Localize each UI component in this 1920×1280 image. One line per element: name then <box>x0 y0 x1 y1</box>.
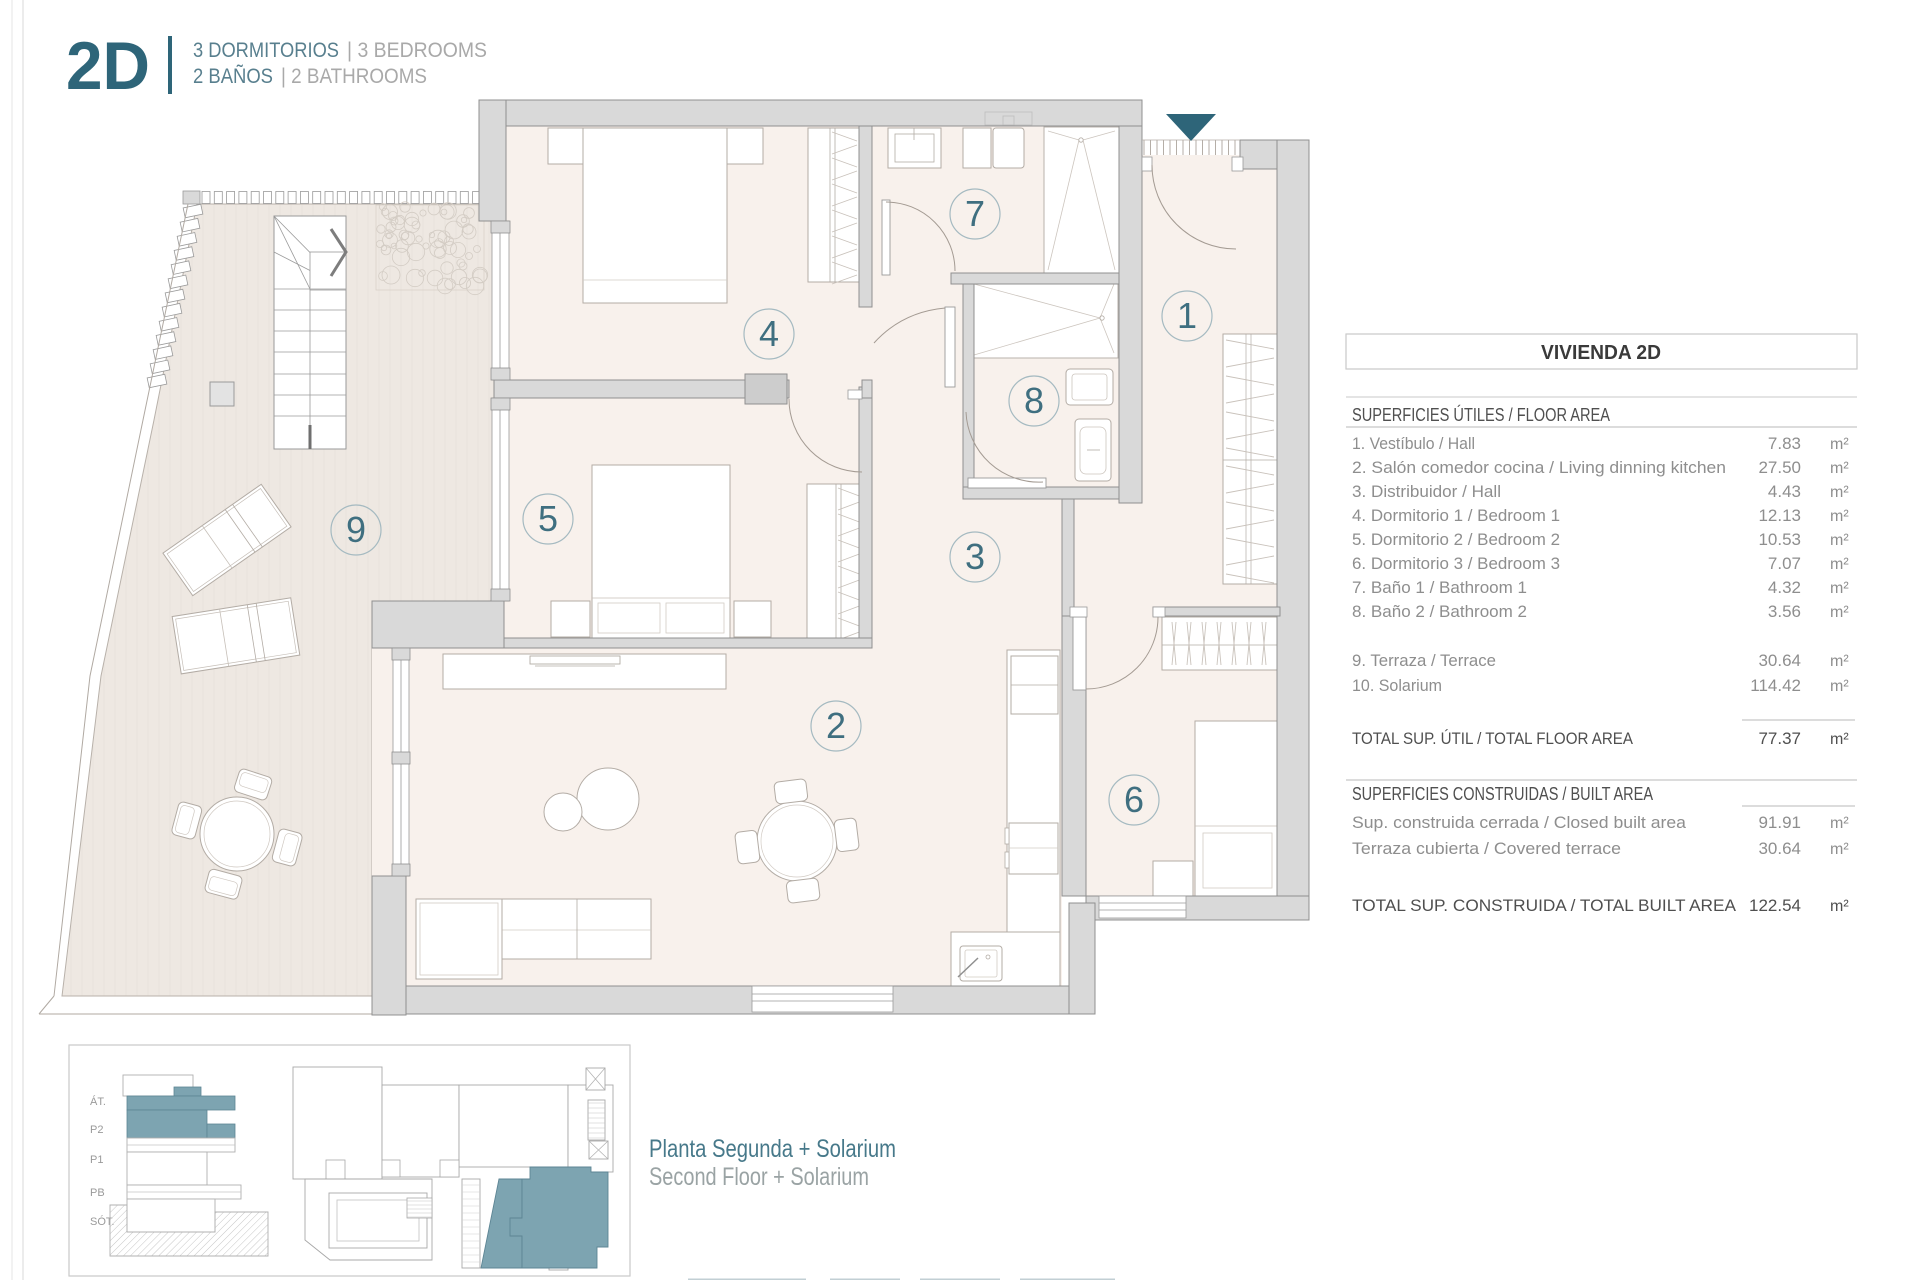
svg-text:m²: m² <box>1830 841 1849 858</box>
svg-text:7. Baño 1 / Bathroom 1: 7. Baño 1 / Bathroom 1 <box>1352 578 1527 597</box>
svg-text:TOTAL SUP. ÚTIL / TOTAL FLOOR: TOTAL SUP. ÚTIL / TOTAL FLOOR AREA <box>1352 729 1634 748</box>
svg-text:m²: m² <box>1830 580 1849 597</box>
svg-text:7: 7 <box>965 193 985 234</box>
svg-text:4. Dormitorio 1 / Bedroom 1: 4. Dormitorio 1 / Bedroom 1 <box>1352 506 1560 525</box>
svg-text:9. Terraza / Terrace: 9. Terraza / Terrace <box>1352 651 1496 670</box>
svg-text:m²: m² <box>1830 460 1849 477</box>
svg-text:5. Dormitorio 2 / Bedroom 2: 5. Dormitorio 2 / Bedroom 2 <box>1352 530 1560 549</box>
svg-text:27.50: 27.50 <box>1758 458 1801 477</box>
svg-text:6: 6 <box>1124 779 1144 820</box>
svg-text:m²: m² <box>1830 653 1849 670</box>
svg-text:m²: m² <box>1830 898 1849 915</box>
svg-text:12.13: 12.13 <box>1758 506 1801 525</box>
svg-text:7.83: 7.83 <box>1768 434 1801 453</box>
svg-text:10. Solarium: 10. Solarium <box>1352 676 1442 695</box>
svg-text:122.54: 122.54 <box>1749 896 1801 915</box>
svg-text:30.64: 30.64 <box>1758 839 1801 858</box>
svg-text:Terraza cubierta / Covered ter: Terraza cubierta / Covered terrace <box>1352 839 1621 858</box>
svg-text:| 2 BATHROOMS: | 2 BATHROOMS <box>281 65 427 88</box>
svg-text:3. Distribuidor / Hall: 3. Distribuidor / Hall <box>1352 482 1501 501</box>
svg-text:4: 4 <box>759 313 779 354</box>
svg-text:m²: m² <box>1830 604 1849 621</box>
svg-text:m²: m² <box>1830 815 1849 832</box>
svg-text:ÁT.: ÁT. <box>90 1095 106 1108</box>
svg-text:m²: m² <box>1830 508 1849 525</box>
svg-text:P2: P2 <box>90 1124 103 1136</box>
svg-text:4.43: 4.43 <box>1768 482 1801 501</box>
svg-text:Sup. construida cerrada / Clos: Sup. construida cerrada / Closed built a… <box>1352 813 1687 832</box>
svg-text:SUPERFICIES ÚTILES / FLOOR ARE: SUPERFICIES ÚTILES / FLOOR AREA <box>1352 404 1610 425</box>
svg-text:2D: 2D <box>66 28 150 104</box>
svg-text:Second Floor + Solarium: Second Floor + Solarium <box>649 1163 869 1191</box>
svg-text:m²: m² <box>1830 731 1849 748</box>
svg-text:30.64: 30.64 <box>1758 651 1801 670</box>
svg-text:114.42: 114.42 <box>1750 676 1801 695</box>
svg-text:Planta Segunda + Solarium: Planta Segunda + Solarium <box>649 1135 896 1163</box>
svg-text:PB: PB <box>90 1187 105 1199</box>
svg-text:8. Baño 2 / Bathroom 2: 8. Baño 2 / Bathroom 2 <box>1352 602 1527 621</box>
svg-text:m²: m² <box>1830 436 1849 453</box>
svg-text:7.07: 7.07 <box>1768 554 1801 573</box>
svg-text:m²: m² <box>1830 484 1849 501</box>
svg-text:3: 3 <box>965 536 985 577</box>
svg-text:2. Salón comedor cocina / Livi: 2. Salón comedor cocina / Living dinning… <box>1352 458 1726 477</box>
svg-text:m²: m² <box>1830 556 1849 573</box>
svg-text:91.91: 91.91 <box>1758 813 1801 832</box>
svg-text:VIVIENDA 2D: VIVIENDA 2D <box>1541 342 1661 364</box>
svg-text:SUPERFICIES CONSTRUIDAS / BUIL: SUPERFICIES CONSTRUIDAS / BUILT AREA <box>1352 784 1653 804</box>
svg-text:3 DORMITORIOS: 3 DORMITORIOS <box>193 39 339 62</box>
svg-text:77.37: 77.37 <box>1758 729 1801 748</box>
svg-text:9: 9 <box>346 509 366 550</box>
svg-text:1. Vestíbulo / Hall: 1. Vestíbulo / Hall <box>1352 434 1475 453</box>
svg-text:8: 8 <box>1024 380 1044 421</box>
svg-text:4.32: 4.32 <box>1768 578 1801 597</box>
svg-text:6. Dormitorio 3 / Bedroom 3: 6. Dormitorio 3 / Bedroom 3 <box>1352 554 1560 573</box>
svg-text:m²: m² <box>1830 532 1849 549</box>
svg-text:m²: m² <box>1830 678 1849 695</box>
svg-text:P1: P1 <box>90 1154 103 1166</box>
svg-text:| 3 BEDROOMS: | 3 BEDROOMS <box>347 39 487 62</box>
svg-text:5: 5 <box>538 498 558 539</box>
svg-text:2: 2 <box>826 705 846 746</box>
svg-text:1: 1 <box>1177 295 1197 336</box>
svg-text:10.53: 10.53 <box>1758 530 1801 549</box>
svg-text:3.56: 3.56 <box>1768 602 1801 621</box>
svg-text:2 BAÑOS: 2 BAÑOS <box>193 64 273 88</box>
svg-text:TOTAL SUP. CONSTRUIDA / TOTAL: TOTAL SUP. CONSTRUIDA / TOTAL BUILT AREA <box>1352 896 1737 915</box>
